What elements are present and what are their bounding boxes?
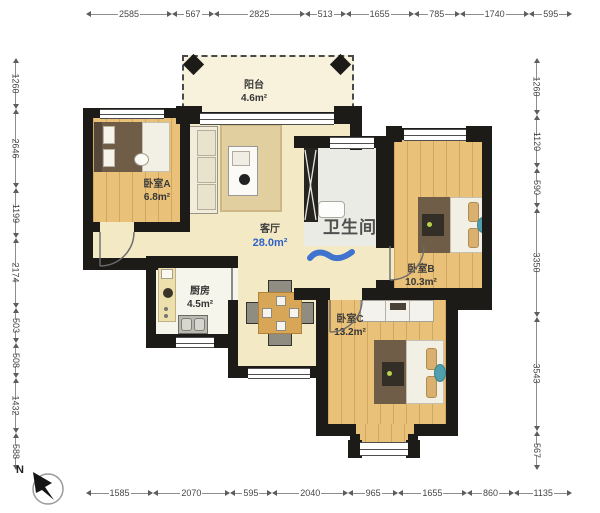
door-arc-bedroom-a: [100, 232, 134, 266]
annotation-mark: [310, 252, 352, 258]
compass-north-label: N: [16, 464, 24, 476]
plan-overlay: N: [0, 0, 600, 513]
door-arc-bedroom-b: [390, 246, 424, 280]
floor-plan-canvas: 2585567282551316557851740595 15852070595…: [0, 0, 600, 513]
compass-icon: N: [16, 464, 63, 504]
door-arc-bedroom-c: [330, 300, 362, 332]
flue-x-icon: [305, 150, 316, 220]
